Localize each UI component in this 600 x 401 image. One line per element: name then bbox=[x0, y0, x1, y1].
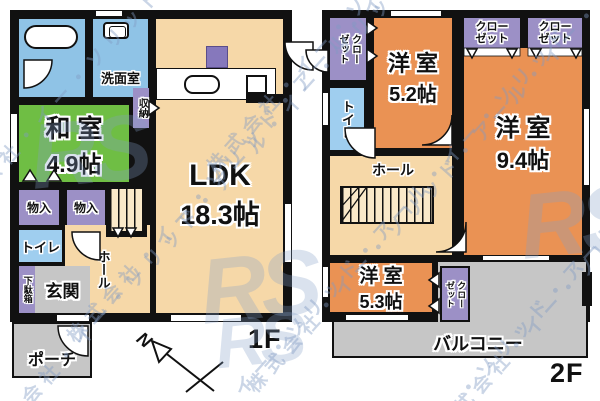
kitchen-sink-icon bbox=[184, 75, 220, 94]
room-size-washitsu: 4.9帖 bbox=[46, 145, 103, 179]
room-size-ldk: 18.3帖 bbox=[160, 193, 280, 232]
north-arrow-icon: N bbox=[133, 328, 223, 392]
room-label-toilet-1f: トイレ bbox=[21, 237, 60, 256]
room-label-balcony: バルコニー bbox=[408, 330, 548, 356]
room-label-toilet-2f: トイレ bbox=[340, 100, 354, 139]
room-label-yoshitsu-52: 洋 室 bbox=[388, 46, 438, 78]
entrance-opening bbox=[56, 314, 90, 322]
window bbox=[583, 108, 590, 186]
bathtub-icon bbox=[24, 25, 78, 49]
room-yoshitsu-94: 洋 室 9.4帖 bbox=[464, 48, 582, 255]
balcony-door-window bbox=[482, 255, 550, 261]
room-closet-top-2: クロー ゼット bbox=[528, 18, 582, 48]
room-label-genkan: 玄関 bbox=[46, 277, 80, 302]
room-porch: ポーチ bbox=[12, 322, 92, 378]
window bbox=[390, 10, 442, 17]
window bbox=[95, 10, 123, 17]
window bbox=[322, 92, 329, 126]
room-label-hall-1f: ホール bbox=[96, 250, 110, 289]
room-yoshitsu-53: 洋 室 5.3帖 bbox=[330, 263, 432, 312]
room-shunou: 収納 bbox=[133, 88, 149, 128]
room-monoire-left: 物入 bbox=[19, 190, 59, 225]
window bbox=[170, 314, 242, 322]
balcony-wall-stub bbox=[582, 272, 592, 306]
window bbox=[322, 266, 329, 298]
room-getabako: 下駄箱 bbox=[19, 266, 35, 313]
room-label-yoshitsu-94: 洋 室 bbox=[496, 108, 551, 143]
balcony-door-window bbox=[345, 314, 409, 321]
room-toilet-1f: トイレ bbox=[19, 230, 62, 262]
kitchen-wall-stub bbox=[246, 94, 283, 103]
room-washitsu: 和 室 4.9帖 bbox=[19, 105, 129, 182]
stairs-1f bbox=[110, 189, 143, 231]
room-label-senmenshitsu: 洗面室 bbox=[93, 68, 148, 87]
kitchen-stove-icon bbox=[246, 75, 267, 94]
room-label-getabako: 下駄箱 bbox=[22, 276, 31, 303]
room-label-closet-side-bottom: クローゼット bbox=[444, 278, 467, 311]
room-label-washitsu: 和 室 bbox=[46, 109, 103, 145]
room-yoshitsu-52: 洋 室 5.2帖 bbox=[374, 18, 452, 148]
window bbox=[10, 113, 18, 163]
room-size-yoshitsu-94: 9.4帖 bbox=[496, 143, 551, 175]
north-label: N bbox=[133, 328, 156, 352]
refrigerator-icon bbox=[206, 46, 228, 68]
room-label-porch: ポーチ bbox=[14, 346, 90, 370]
room-bathroom bbox=[19, 19, 85, 97]
room-closet-top-1: クロー ゼット bbox=[464, 18, 520, 48]
room-label-shunou: 収納 bbox=[136, 98, 147, 118]
room-size-yoshitsu-53: 5.3帖 bbox=[359, 288, 402, 314]
stairs-2f bbox=[340, 186, 434, 224]
room-label-monoire-right: 物入 bbox=[74, 199, 98, 216]
room-toilet-2f: トイレ bbox=[330, 88, 364, 150]
room-label-ldk: LDK bbox=[160, 159, 280, 193]
room-closet-side-bottom: クローゼット bbox=[440, 266, 470, 322]
washer-pan-icon bbox=[103, 22, 129, 39]
floorplan-image: 洗面室 和 室 4.9帖 収納 LDK 18.3帖 物入 物入 bbox=[0, 0, 600, 401]
room-label-yoshitsu-53: 洋 室 bbox=[359, 261, 402, 288]
room-monoire-right: 物入 bbox=[67, 190, 105, 225]
floor-label-1f: 1F bbox=[248, 324, 282, 355]
room-label-hall-2f: ホール bbox=[372, 160, 414, 180]
room-senmenshitsu: 洗面室 bbox=[93, 19, 148, 97]
room-label-monoire-left: 物入 bbox=[27, 199, 51, 216]
room-label-closet-top-2: クロー ゼット bbox=[538, 21, 572, 45]
floor-label-2f: 2F bbox=[550, 358, 584, 389]
room-label-closet-top-1: クロー ゼット bbox=[475, 21, 509, 45]
room-genkan: 玄関 bbox=[35, 266, 90, 313]
room-size-yoshitsu-52: 5.2帖 bbox=[388, 78, 438, 107]
window bbox=[284, 203, 292, 263]
room-label-closet-side-top: クローゼット bbox=[336, 31, 361, 67]
room-closet-side-top: クローゼット bbox=[330, 18, 366, 80]
